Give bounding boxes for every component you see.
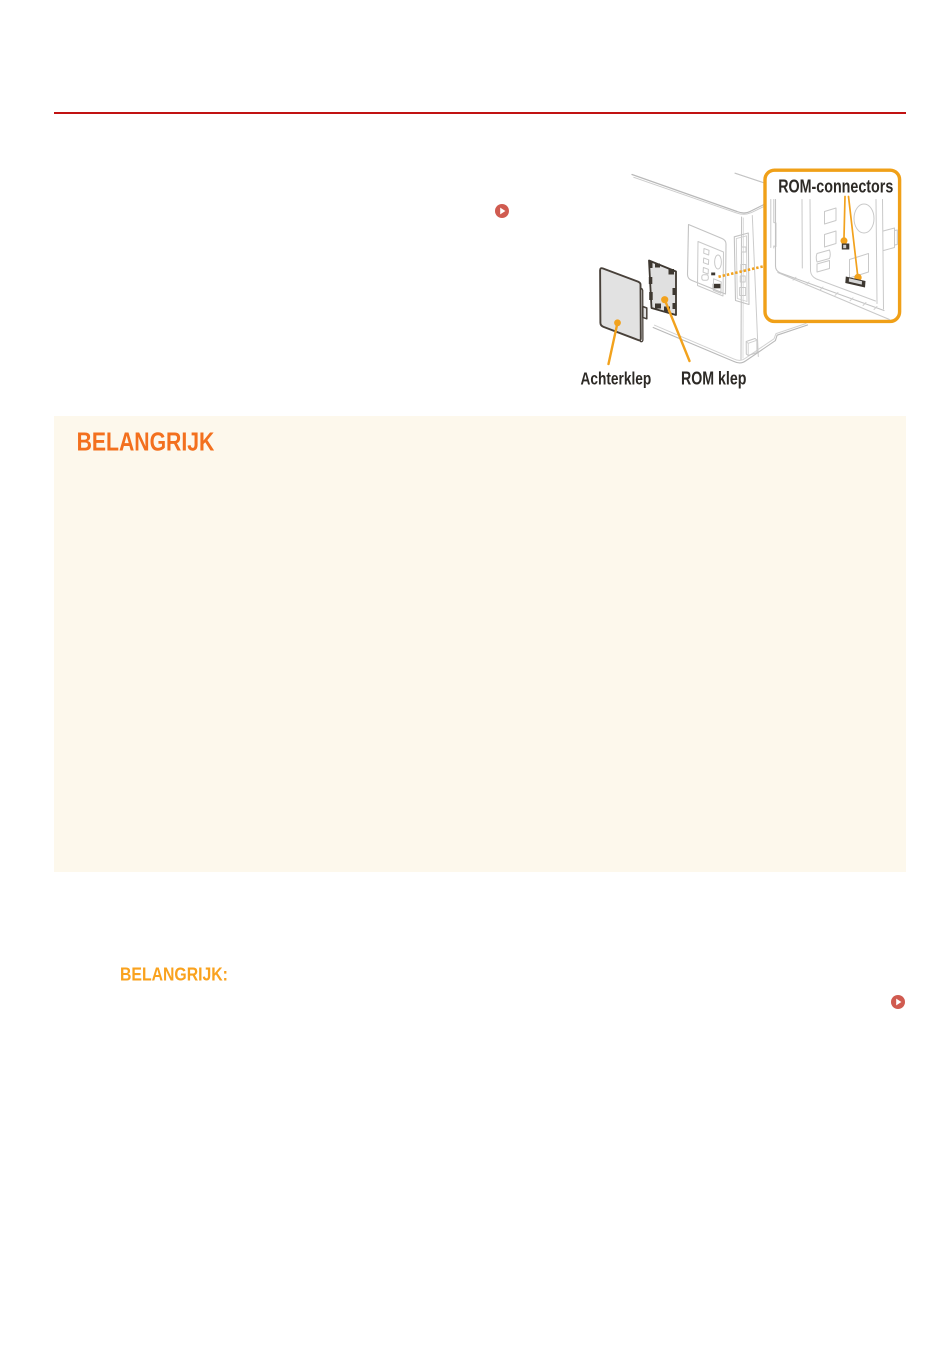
svg-text:ROM-connectors: ROM-connectors (778, 177, 893, 197)
svg-text:Achterklep: Achterklep (581, 370, 652, 389)
svg-text:ROM klep: ROM klep (681, 369, 746, 389)
